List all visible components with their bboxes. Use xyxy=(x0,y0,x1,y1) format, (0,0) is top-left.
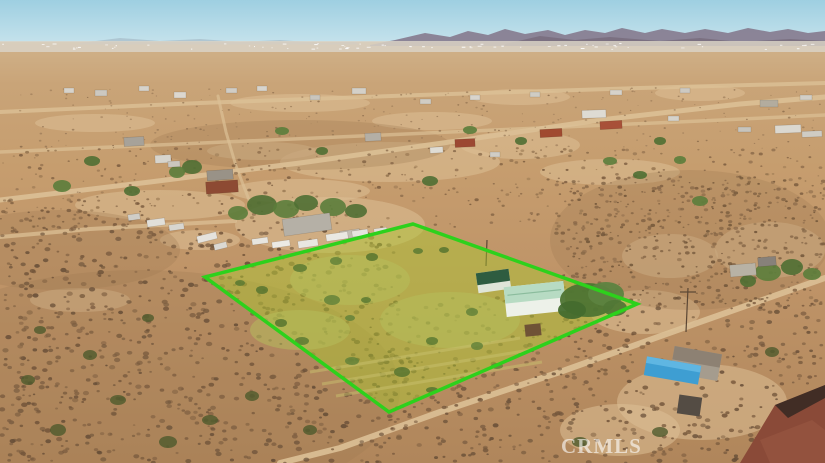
scene-svg xyxy=(0,0,825,463)
horizon-haze xyxy=(0,41,825,52)
aerial-photo: CRMLS xyxy=(0,0,825,463)
